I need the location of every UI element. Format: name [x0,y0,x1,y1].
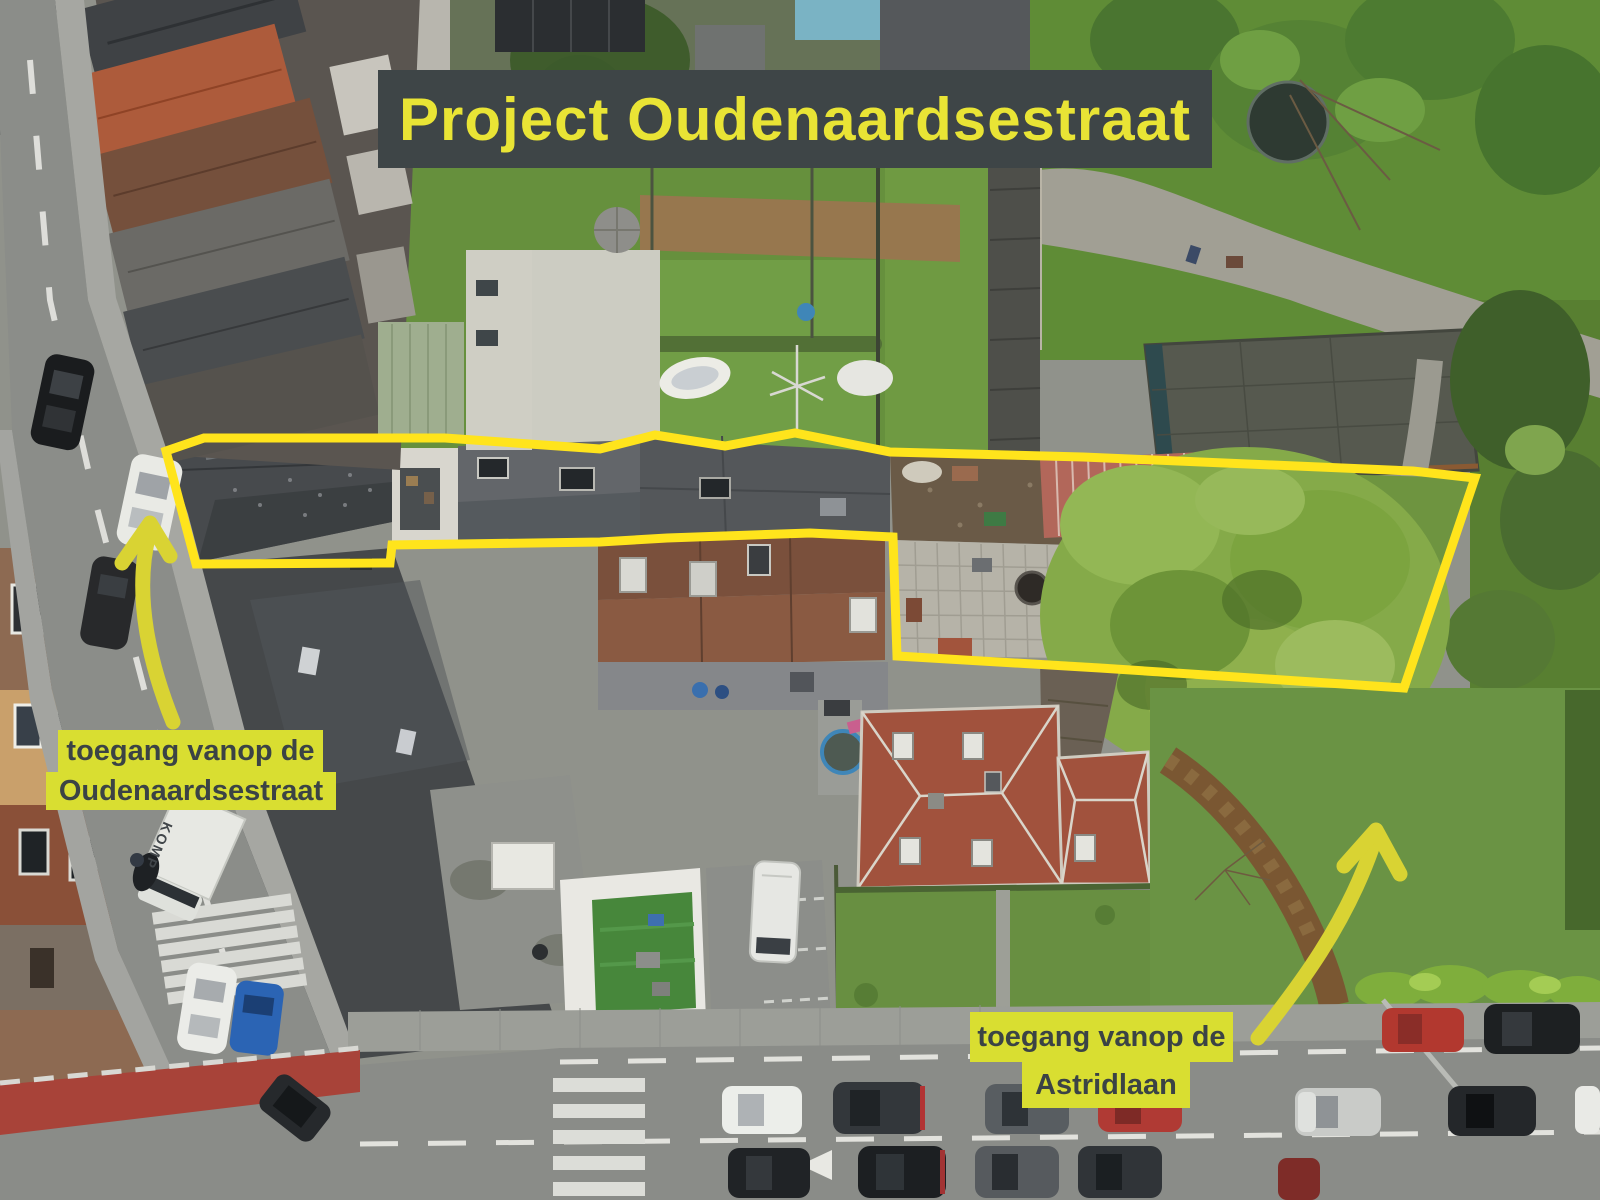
right-access-label-line1: toegang vanop de [970,1012,1233,1062]
white-van [749,861,800,963]
person [1226,256,1243,268]
blue-car [229,979,285,1056]
title-banner: Project Oudenaardsestraat [378,70,1212,168]
blue-trampoline [822,731,864,773]
aerial-photo [0,0,1600,1200]
left-access-label-line1: toegang vanop de [58,730,323,772]
left-access-label-line2: Oudenaardsestraat [46,772,336,810]
title-text: Project Oudenaardsestraat [399,85,1191,154]
trampoline [1248,82,1328,162]
annotated-aerial-screenshot: Project Oudenaardsestraat toegang vanop … [0,0,1600,1200]
right-access-label-line2: Astridlaan [1022,1062,1190,1108]
green-metal-roof [378,322,464,440]
